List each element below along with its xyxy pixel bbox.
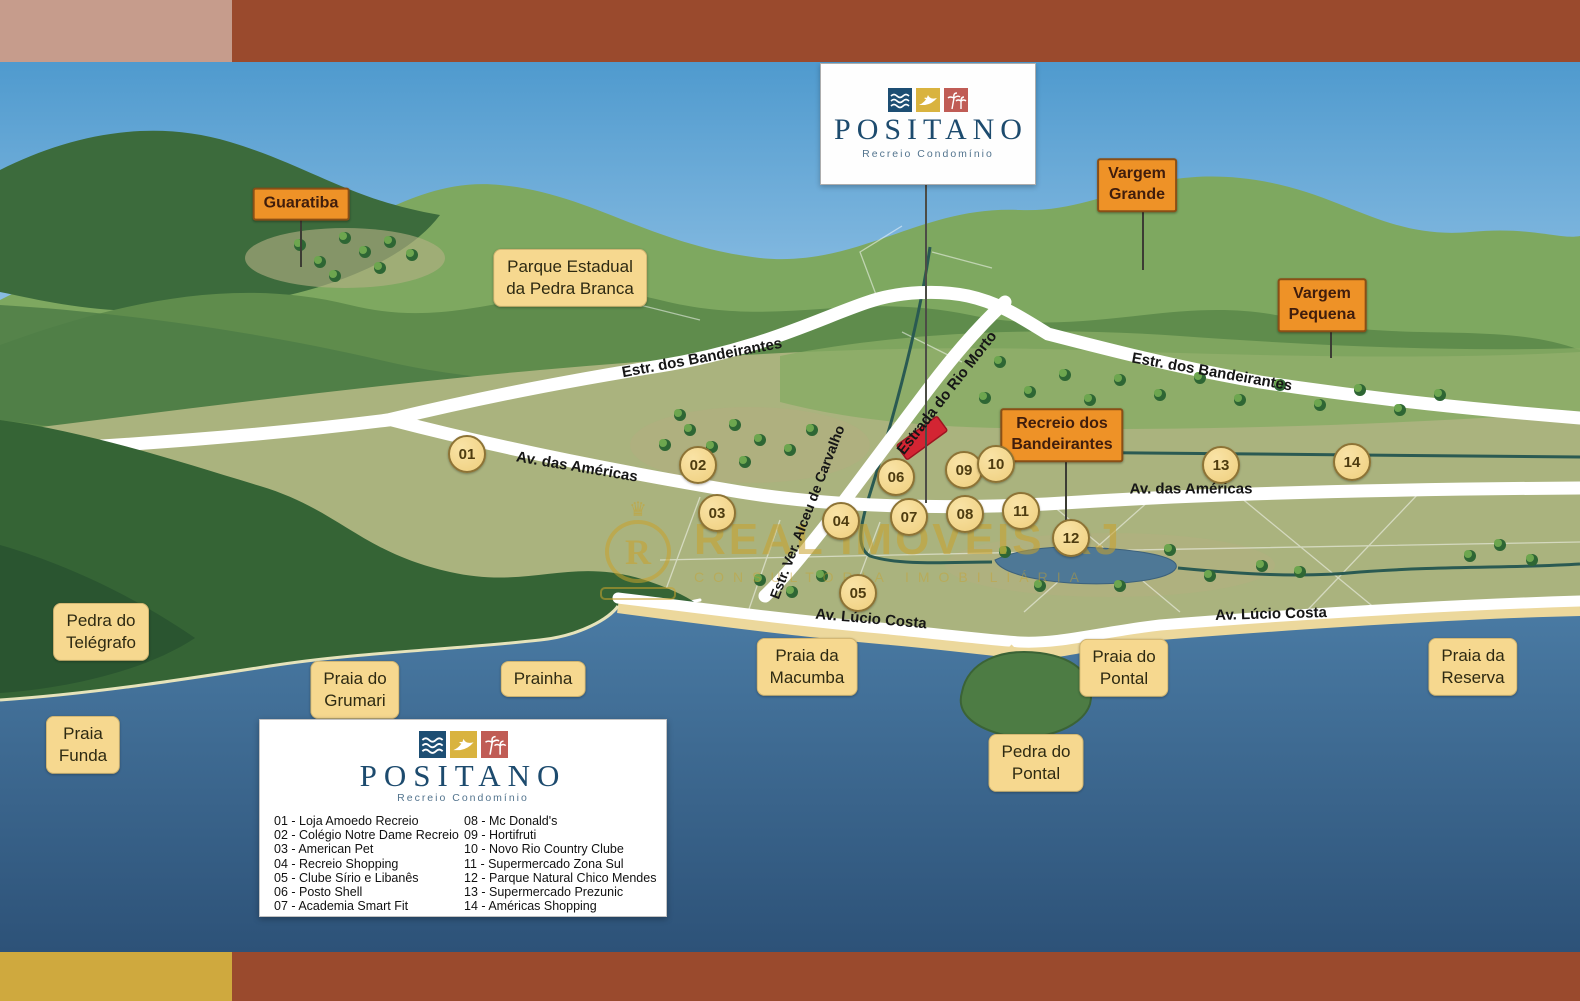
label-praia-funda: Praia Funda bbox=[46, 716, 120, 774]
vargem-grande-pointer bbox=[1142, 212, 1144, 270]
legend-item: 02 - Colégio Notre Dame Recreio bbox=[274, 828, 464, 842]
poi-marker-06: 06 bbox=[877, 458, 915, 496]
map-poster: ♛ R REAL IMÓVEIS RJ CONSULTORIA IMOBILIÁ… bbox=[0, 0, 1580, 1001]
label-parque-pedra-branca: Parque Estadual da Pedra Branca bbox=[493, 249, 647, 307]
label-vargem-pequena: Vargem Pequena bbox=[1278, 278, 1367, 332]
poi-marker-04: 04 bbox=[822, 502, 860, 540]
road-label-lucio-costa-right: Av. Lúcio Costa bbox=[1215, 604, 1327, 624]
legend-logo bbox=[260, 731, 666, 758]
poi-marker-14: 14 bbox=[1333, 443, 1371, 481]
legend-column-left: 01 - Loja Amoedo Recreio 02 - Colégio No… bbox=[274, 814, 464, 913]
road-label-americas-right: Av. das Américas bbox=[1130, 481, 1253, 498]
waves-icon bbox=[888, 88, 912, 112]
poi-marker-13: 13 bbox=[1202, 446, 1240, 484]
bird-icon bbox=[450, 731, 477, 758]
legend-item: 01 - Loja Amoedo Recreio bbox=[274, 814, 464, 828]
poi-marker-03: 03 bbox=[698, 494, 736, 532]
poi-marker-02: 02 bbox=[679, 446, 717, 484]
sign-title: POSITANO bbox=[834, 115, 1028, 145]
label-pedra-do-pontal: Pedra do Pontal bbox=[989, 734, 1084, 792]
legend-item: 09 - Hortifruti bbox=[464, 828, 654, 842]
label-guaratiba: Guaratiba bbox=[253, 188, 350, 221]
legend-title: POSITANO bbox=[260, 760, 666, 791]
bottom-left-accent bbox=[0, 952, 232, 1001]
legend-item: 04 - Recreio Shopping bbox=[274, 857, 464, 871]
poi-marker-05: 05 bbox=[839, 574, 877, 612]
legend-item: 12 - Parque Natural Chico Mendes bbox=[464, 871, 654, 885]
legend-item: 06 - Posto Shell bbox=[274, 885, 464, 899]
sign-subtitle: Recreio Condomínio bbox=[862, 148, 994, 160]
waves-icon bbox=[419, 731, 446, 758]
sign-pole bbox=[925, 183, 927, 503]
poi-marker-10: 10 bbox=[977, 445, 1015, 483]
top-frame-bar bbox=[0, 0, 1580, 62]
label-recreio-dos-bandeirantes: Recreio dos Bandeirantes bbox=[1000, 408, 1123, 462]
legend-item: 10 - Novo Rio Country Clube bbox=[464, 842, 654, 856]
poi-marker-08: 08 bbox=[946, 495, 984, 533]
legend-item: 14 - Américas Shopping bbox=[464, 899, 654, 913]
terrain-illustration bbox=[0, 62, 1580, 952]
guaratiba-pointer bbox=[300, 217, 302, 267]
label-vargem-grande: Vargem Grande bbox=[1097, 158, 1177, 212]
label-praia-da-reserva: Praia da Reserva bbox=[1428, 638, 1517, 696]
poi-marker-12: 12 bbox=[1052, 519, 1090, 557]
legend-subtitle: Recreio Condomínio bbox=[260, 792, 666, 804]
label-praia-do-pontal: Praia do Pontal bbox=[1079, 639, 1168, 697]
positano-sign: POSITANO Recreio Condomínio bbox=[820, 63, 1036, 185]
legend-item: 13 - Supermercado Prezunic bbox=[464, 885, 654, 899]
map-canvas: ♛ R REAL IMÓVEIS RJ CONSULTORIA IMOBILIÁ… bbox=[0, 62, 1580, 952]
legend-item: 08 - Mc Donald's bbox=[464, 814, 654, 828]
palm-icon bbox=[481, 731, 508, 758]
legend-panel: POSITANO Recreio Condomínio 01 - Loja Am… bbox=[259, 719, 667, 917]
label-praia-da-macumba: Praia da Macumba bbox=[757, 638, 858, 696]
top-left-accent bbox=[0, 0, 232, 62]
poi-marker-01: 01 bbox=[448, 435, 486, 473]
positano-logo bbox=[888, 88, 968, 112]
legend-item: 11 - Supermercado Zona Sul bbox=[464, 857, 654, 871]
bird-icon bbox=[916, 88, 940, 112]
legend-item: 07 - Academia Smart Fit bbox=[274, 899, 464, 913]
legend-item: 05 - Clube Sírio e Libanês bbox=[274, 871, 464, 885]
palm-icon bbox=[944, 88, 968, 112]
label-prainha: Prainha bbox=[501, 661, 586, 697]
pedra-do-pontal-island bbox=[961, 652, 1091, 737]
label-praia-do-grumari: Praia do Grumari bbox=[310, 661, 399, 719]
poi-marker-11: 11 bbox=[1002, 492, 1040, 530]
bottom-frame-bar bbox=[0, 952, 1580, 1001]
vargem-pequena-pointer bbox=[1330, 330, 1332, 358]
legend-item: 03 - American Pet bbox=[274, 842, 464, 856]
legend-column-right: 08 - Mc Donald's 09 - Hortifruti 10 - No… bbox=[464, 814, 654, 913]
label-pedra-do-telegrafo: Pedra do Telégrafo bbox=[53, 603, 149, 661]
poi-marker-07: 07 bbox=[890, 498, 928, 536]
